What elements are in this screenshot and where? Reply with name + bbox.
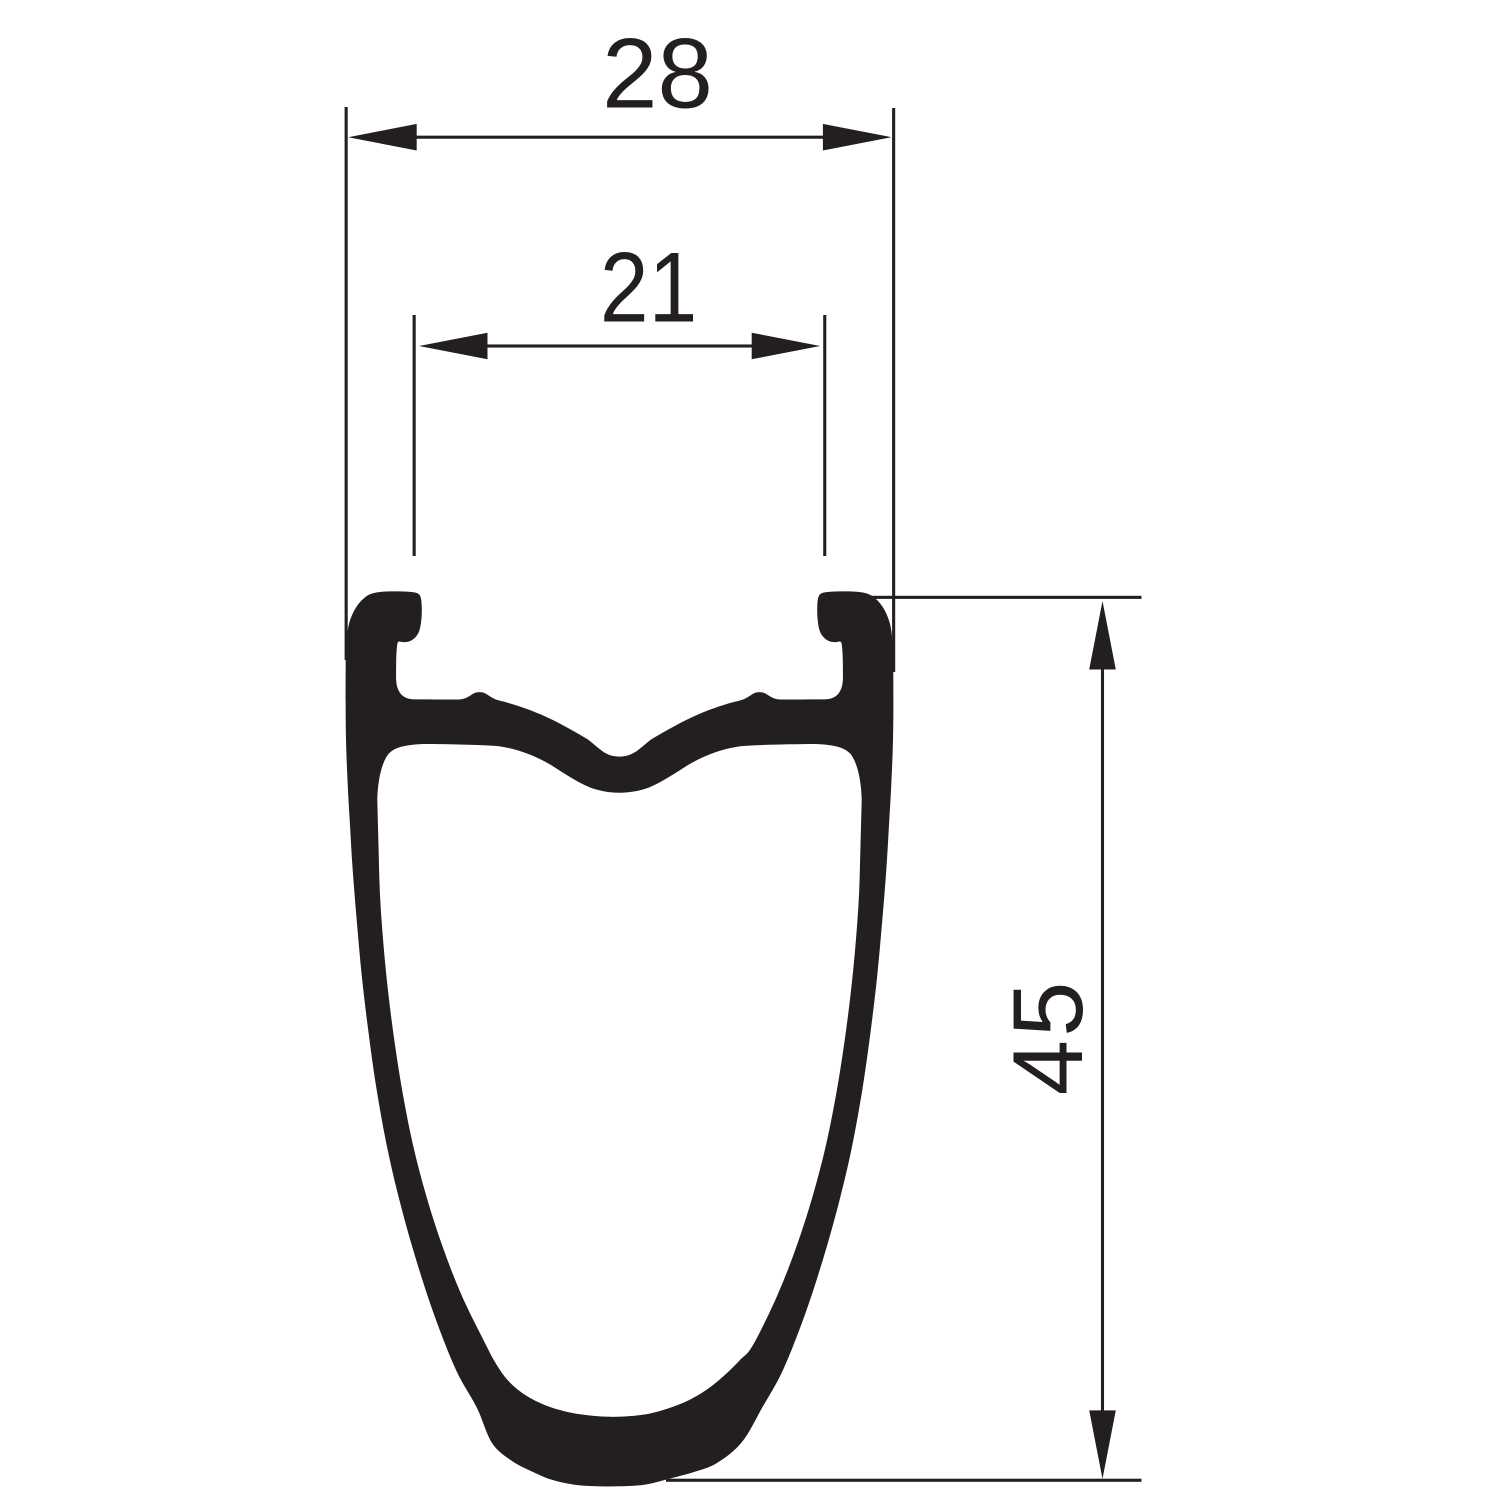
svg-text:21: 21 bbox=[600, 231, 697, 342]
svg-text:45: 45 bbox=[993, 979, 1104, 1096]
svg-text:28: 28 bbox=[602, 19, 713, 130]
